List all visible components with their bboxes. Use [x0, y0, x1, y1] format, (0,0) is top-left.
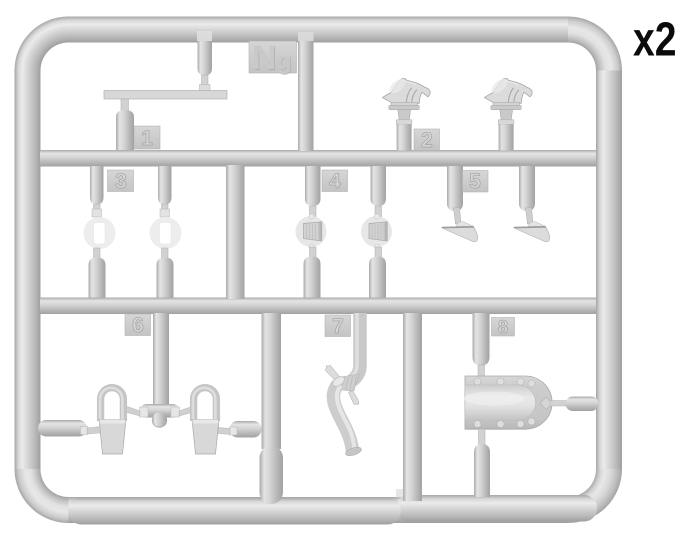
- svg-text:5: 5: [469, 170, 481, 193]
- svg-text:x2: x2: [633, 14, 677, 67]
- svg-text:8: 8: [498, 316, 508, 337]
- svg-text:3: 3: [115, 170, 127, 193]
- svg-text:g: g: [277, 48, 292, 75]
- svg-text:1: 1: [141, 127, 153, 150]
- svg-text:N: N: [252, 39, 277, 77]
- svg-text:7: 7: [332, 315, 344, 338]
- svg-text:2: 2: [421, 129, 433, 152]
- svg-text:4: 4: [329, 170, 341, 193]
- svg-text:6: 6: [132, 314, 144, 337]
